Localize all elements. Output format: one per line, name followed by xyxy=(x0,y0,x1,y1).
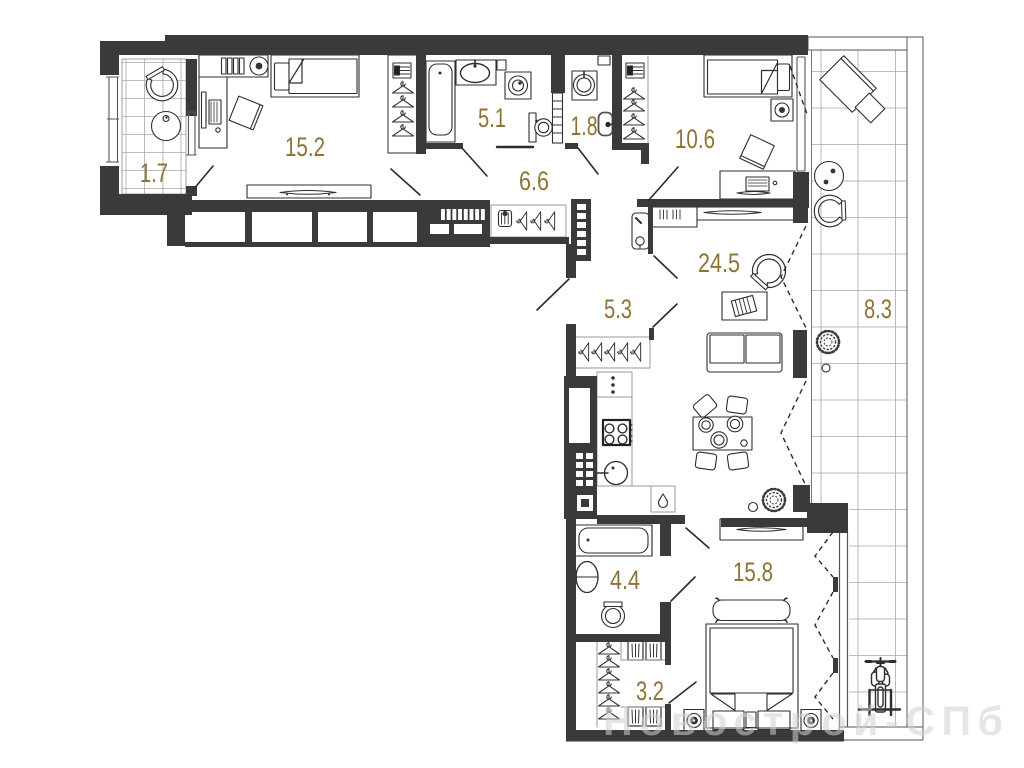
svg-text:15.8: 15.8 xyxy=(733,557,773,587)
svg-text:8.3: 8.3 xyxy=(864,294,892,324)
svg-text:5.1: 5.1 xyxy=(478,103,506,133)
svg-text:24.5: 24.5 xyxy=(698,248,740,278)
svg-text:15.2: 15.2 xyxy=(285,132,325,162)
svg-text:10.6: 10.6 xyxy=(675,124,715,154)
svg-text:6.6: 6.6 xyxy=(519,166,549,196)
svg-text:5.3: 5.3 xyxy=(604,294,632,324)
svg-text:Новострой-СПб: Новострой-СПб xyxy=(603,698,1003,744)
svg-text:1.7: 1.7 xyxy=(140,158,168,188)
svg-text:4.4: 4.4 xyxy=(610,565,640,595)
svg-text:1.8: 1.8 xyxy=(571,111,598,141)
